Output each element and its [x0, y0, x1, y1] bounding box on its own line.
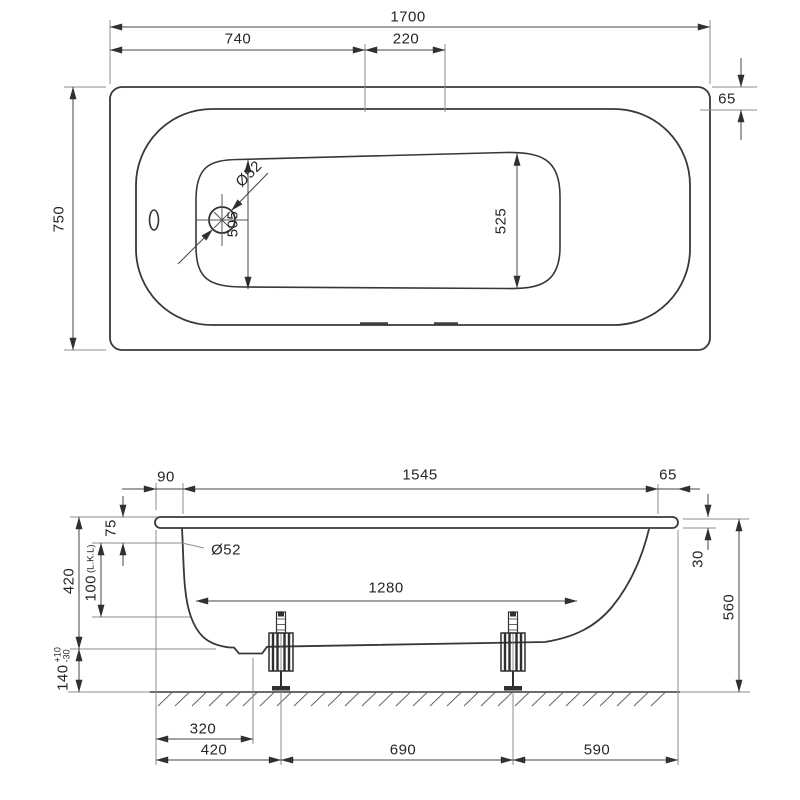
plan-view [64, 20, 757, 350]
water-depth-suffix: (L.K.L) [86, 544, 96, 573]
dim-overall-width: 750 [52, 206, 67, 233]
dim-rim-to-drain: 75 [104, 519, 119, 537]
dim-section-center: 220 [393, 32, 420, 47]
dim-front-foot-offset: 420 [201, 743, 228, 758]
dim-rim-drop: 30 [691, 550, 706, 568]
dim-overall-length: 1700 [390, 10, 425, 25]
tub-outer-edge [110, 87, 710, 350]
dim-floor-width-505: 505 [226, 211, 241, 238]
clearance-value: 140 [56, 664, 71, 691]
plan-dimension-lines [64, 20, 757, 350]
side-view [68, 483, 750, 765]
dim-rim-width-plan: 65 [718, 92, 736, 107]
dim-rear-foot-offset: 590 [584, 743, 611, 758]
dim-inner-length: 1545 [402, 468, 437, 483]
dim-floor-clearance: 140 +10 -30 [54, 647, 73, 691]
side-dimensions [79, 489, 739, 760]
drain-symbol [178, 173, 268, 264]
plan-dimensions [73, 27, 741, 350]
dim-rim-overhang: 90 [157, 470, 175, 485]
bathtub-technical-drawing: 1700 740 220 65 750 505 525 Ø52 90 1545 … [0, 0, 800, 800]
dim-water-depth: 100 (L.K.L) [84, 544, 99, 601]
dim-drain-offset: 320 [190, 722, 217, 737]
dim-overall-height: 560 [722, 594, 737, 621]
water-depth-value: 100 [84, 575, 99, 602]
floor-hatching [158, 693, 665, 707]
rim-profile [155, 517, 678, 528]
dim-foot-spacing: 690 [390, 743, 417, 758]
drawing-linework [0, 0, 800, 800]
dim-section-left: 740 [225, 32, 252, 47]
clearance-tol-minus: -30 [63, 647, 72, 662]
foot-left [269, 611, 293, 691]
overflow-hole [150, 210, 159, 230]
dim-rim-width-side: 65 [659, 468, 677, 483]
dim-floor-width-525: 525 [494, 208, 509, 235]
dim-floor-length: 1280 [368, 581, 403, 596]
foot-right [501, 611, 525, 691]
floor-line [68, 692, 750, 706]
dim-body-depth: 420 [62, 568, 77, 595]
label-drain-diameter-side: Ø52 [211, 543, 241, 558]
tub-section-profile [182, 528, 649, 654]
